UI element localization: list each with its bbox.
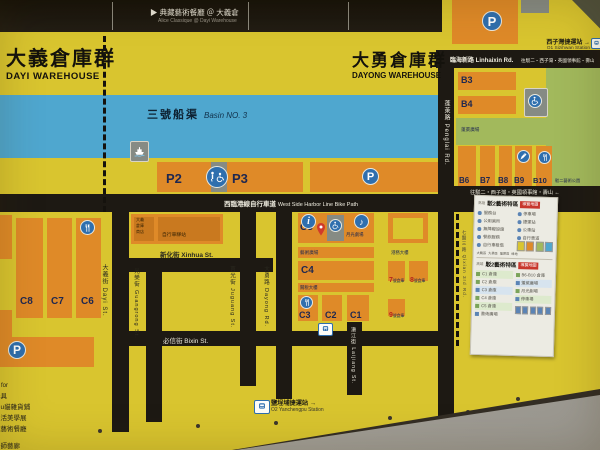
zone-chip-dayi — [516, 241, 524, 251]
art-plaza-label: 藝術廣場 — [300, 250, 318, 256]
mrt-icon — [591, 38, 600, 49]
zone-chip-label: 綠地 — [511, 251, 518, 256]
bixin-label: 必信街 Bixin St. — [163, 335, 208, 345]
legend-item-label: 公用廁所 — [483, 218, 500, 224]
zone-chip-penglai — [535, 242, 543, 252]
edge-building-upper — [0, 215, 12, 259]
legend-item-label: C4 倉庫 — [481, 295, 496, 301]
mini-chip — [522, 306, 528, 314]
warehouse-b8-label: B8 — [498, 176, 508, 185]
warehouse-b6-label: B6 — [459, 176, 469, 185]
header-divider — [348, 2, 349, 30]
warehouse-b7-label: B7 — [480, 176, 490, 185]
moonlight-theater-label: 月光劇場 — [346, 232, 364, 238]
legend-col-1: 服務台 公用廁所 無障礙設施 餐飲服務 自行車租借 — [477, 209, 515, 250]
sizihwan-zh: 西子灣捷運站 → — [524, 37, 590, 46]
parking-letter: P — [488, 14, 497, 29]
legend-square-icon — [475, 296, 479, 300]
craft-icon — [517, 150, 530, 163]
legend-item-label: B6-B10 倉庫 — [521, 272, 545, 279]
legend-square-icon — [476, 288, 480, 292]
linhaixin-label: 臨海新路 Linhaixin Rd. — [450, 55, 513, 64]
warehouse-b3-label: B3 — [461, 75, 473, 85]
legend-dot-icon — [477, 235, 481, 239]
legend-prefix: 高雄 — [476, 261, 483, 266]
tenant-line: lulu貓雜貨鋪 — [0, 401, 30, 411]
road-dayi-st — [112, 212, 129, 432]
zone-title-dayi-zh: 大義倉庫群 — [6, 42, 116, 71]
warehouse-c1-label: C1 — [350, 310, 362, 320]
legend-prefix: 高雄 — [478, 200, 485, 205]
warehouse-b9-label: B9 — [514, 176, 524, 185]
legend-item-label: 自行車租借 — [483, 242, 504, 249]
road-juguang — [240, 212, 256, 386]
header-item: ▶ 典藏藝術餐廳 ＠ 大義倉 — [150, 7, 239, 18]
info-icon: i — [301, 214, 316, 229]
legend-item-label: 服務台 — [484, 210, 497, 216]
legend-dot-icon — [477, 243, 481, 247]
zone-title-dayi-en: DAYI WAREHOUSE — [6, 71, 116, 82]
legend-item-label: 餐飲服務 — [483, 234, 500, 240]
zone-chip-label: 大勇區 — [488, 250, 498, 255]
legend-zone-chips — [516, 242, 553, 251]
header-divider — [112, 2, 113, 30]
ferry-ship-icon — [130, 141, 149, 162]
wheelchair-icon — [528, 94, 542, 108]
legend-item-label: 捷運站 — [523, 219, 536, 225]
legend-square-icon — [515, 297, 519, 301]
mini-chip — [544, 307, 550, 315]
zone-title-dayong-zh: 大勇倉庫群 — [352, 46, 447, 71]
zone-chip-label: 大義區 — [477, 250, 487, 255]
yanchengpu-en: O2 Yanchengpu Station — [271, 407, 324, 413]
parking-icon: P — [482, 11, 502, 31]
basin-label: 三號船渠 Basin NO. 3 — [147, 106, 247, 122]
route-dashed-east — [456, 214, 459, 346]
parking-letter: P — [367, 171, 374, 183]
legend-square-icon — [515, 281, 519, 285]
sizihwan-en: O1 Sizihwan Station — [524, 46, 590, 51]
legend-square-icon — [515, 273, 519, 277]
no8-suffix: 號倉庫 — [414, 279, 425, 283]
legend-item-label: C1 倉庫 — [482, 271, 497, 277]
penglai-plaza-label: 蓬萊廣場 — [461, 127, 479, 133]
bike-station-label: 自行車驛站 — [158, 231, 186, 241]
mini-chip — [514, 306, 520, 314]
tower-label: 港務大樓 — [391, 250, 409, 256]
zone-title-dayong: 大勇倉庫群 DAYONG WAREHOUSE — [352, 46, 447, 80]
legend-square-icon — [515, 289, 519, 293]
zone-title-dayong-en: DAYONG WAREHOUSE — [352, 71, 447, 80]
parking-p2-label: P2 — [166, 171, 182, 186]
basin-label-en: Basin NO. 3 — [204, 111, 247, 120]
legend-square-icon — [475, 312, 479, 316]
no7-suffix: 號倉庫 — [393, 279, 404, 283]
legend-square-icon — [476, 272, 480, 276]
parking-p3-label: P3 — [232, 171, 248, 186]
music-icon: ♪ — [354, 214, 369, 229]
parking-icon: P — [362, 168, 379, 185]
location-pin-icon — [315, 222, 327, 237]
tenant-list: er for 器具 lulu貓雜貨鋪 生活美學展 藏藝術餐廳 計師藝廊 — [0, 383, 30, 450]
qixian-label: 七賢三路 Qixian 3rd Rd. — [461, 230, 467, 298]
warehouse-no7-label: 7號倉庫 — [389, 269, 404, 287]
bike-path-label-zh: 西臨港線自行車道 — [224, 201, 276, 208]
legend-item-label: 月光劇場 — [521, 288, 538, 294]
legend-badge: 導覽地圖 — [520, 201, 540, 209]
header-item-zh: 典藏藝術餐廳 ＠ 大義倉 — [160, 8, 239, 17]
parking-letter: P — [13, 343, 21, 357]
header-arrow-icon: ▶ — [150, 8, 158, 17]
bike-path-label-en: West Side Harbor Line Bike Path — [278, 202, 358, 208]
legend-item-label: 藝術廣場 — [481, 311, 498, 317]
header-band: ▶ 典藏藝術餐廳 ＠ 大義倉 Alice Classique @ Dayi Wa… — [0, 0, 442, 32]
legend-title: 駁2藝術特區 — [487, 199, 518, 208]
tenant-line: 藏藝術餐廳 — [0, 423, 30, 433]
mini-chip — [537, 307, 543, 315]
rivet-dot — [98, 429, 102, 433]
legend-item-label: C5 倉庫 — [481, 303, 496, 309]
legend-dot-icon — [517, 228, 521, 232]
basin-label-zh: 三號船渠 — [147, 106, 199, 122]
bike-path-label: 西臨港線自行車道 West Side Harbor Line Bike Path — [224, 198, 358, 208]
legend-dot-icon — [517, 212, 521, 216]
photo-corner-top-right — [560, 0, 600, 30]
legend-mini-chips — [514, 306, 551, 315]
legend-item-label: 蓬萊廣場 — [521, 280, 538, 286]
rivet-dot — [516, 397, 520, 401]
basin-water — [0, 95, 438, 158]
legend-item: 停車場 — [515, 295, 552, 304]
road-dayong — [276, 212, 292, 399]
zone-chip-label: 蓬萊區 — [500, 251, 510, 256]
mrt-icon — [254, 400, 270, 414]
warehouse-no8-label: 8號倉庫 — [410, 269, 425, 287]
legend-square-icon — [476, 280, 480, 284]
warehouse-c8-label: C8 — [20, 296, 33, 307]
legend-item-label: 無障礙設施 — [483, 226, 504, 233]
xinhua-label: 新化街 Xinhua St. — [160, 249, 213, 259]
dayi-st-label: 大義街 Dayi St. — [100, 264, 109, 317]
warehouse-no9-label: 9號倉庫 — [389, 304, 404, 322]
legend-dot-icon — [517, 236, 521, 240]
rivet-dot — [196, 424, 200, 428]
tenant-line: 器具 — [0, 390, 30, 400]
warehouse-c2-label: C2 — [325, 310, 337, 320]
legend-dot-icon — [478, 211, 482, 215]
tenant-line: 計師藝廊 — [0, 440, 30, 450]
bike-rental-block: 自行車驛站 — [158, 217, 220, 241]
park-area-east — [546, 67, 600, 186]
tenant-line: er for — [0, 383, 30, 389]
yanchengpu-station-note: 鹽埕埔捷運站 → O2 Yanchengpu Station — [271, 398, 324, 413]
juguang-label: 莒光街 Juguang St. — [228, 266, 236, 328]
warehouse-b4-label: B4 — [461, 99, 473, 109]
warehouse-c4-label: C4 — [301, 265, 314, 276]
legend-header-2: 高雄 駁2藝術特區 導覽地圖 — [476, 260, 552, 270]
dayong-rd-label: 大勇路 Dayong Rd. — [262, 266, 270, 327]
legend-item-label: 停車場 — [521, 296, 534, 302]
dayi-shop-block: 大義 倉庫 商店 — [134, 217, 154, 241]
customs-label: 關稅大樓 — [300, 285, 318, 291]
pier2-map-sign: ▶ 典藏藝術餐廳 ＠ 大義倉 Alice Classique @ Dayi Wa… — [0, 0, 600, 450]
legend-dot-icon — [477, 219, 481, 223]
legend-item-label: 停車場 — [523, 211, 536, 217]
restaurant-icon — [80, 220, 95, 235]
building-top-right-small — [521, 0, 549, 13]
legend-badge: 導覽地圖 — [518, 262, 538, 270]
rivet-dot — [388, 416, 392, 420]
header-item-en: Alice Classique @ Dayi Warehouse — [158, 18, 237, 24]
legend-item-label: C2 倉庫 — [482, 279, 497, 285]
legend-panel: 高雄 駁2藝術特區 導覽地圖 服務台 公用廁所 無障礙設施 餐飲服務 自行車租借… — [470, 195, 558, 357]
legend-item-label: C3 倉庫 — [482, 287, 497, 293]
warehouse-c6-label: C6 — [81, 296, 94, 307]
road-guangrong — [146, 258, 162, 422]
warehouse-c7-label: C7 — [51, 296, 64, 307]
zone-chip-dayong — [526, 241, 534, 251]
sizihwan-station-note: 西子灣捷運站 → O1 Sizihwan Station — [524, 37, 590, 51]
restaurant-icon — [300, 296, 313, 309]
mini-chip — [529, 306, 535, 314]
wheelchair-icon — [329, 219, 342, 232]
legend-square-icon — [475, 304, 479, 308]
tenant-line: 生活美學展 — [0, 412, 30, 422]
restaurant-icon — [538, 151, 551, 164]
yanchengpu-zh: 鹽埕埔捷運站 → — [271, 398, 324, 407]
legend-col-3: C1 倉庫 C2 倉庫 C3 倉庫 C4 倉庫 C5 倉庫 藝術廣場 — [475, 270, 513, 319]
warehouse-c3-label: C3 — [299, 310, 311, 320]
legend-item: 自行車租借 — [477, 241, 514, 250]
dayi-shop-line3: 商店 — [136, 229, 154, 235]
legend-dot-icon — [477, 227, 481, 231]
legend-title: 駁2藝術特區 — [485, 260, 516, 269]
header-divider — [248, 2, 249, 30]
zone-chip-green — [545, 242, 553, 252]
accessible-person-icon — [206, 166, 228, 188]
direction-label-upper: 往駁二・西子灣・英國領事館・壽山 — [521, 58, 595, 64]
warehouse-b10-label: B10 — [533, 176, 547, 185]
legend-item: 藝術廣場 — [475, 310, 512, 319]
mrt-icon — [318, 323, 333, 336]
parking-icon: P — [8, 341, 26, 359]
no9-suffix: 號倉庫 — [393, 314, 404, 318]
laijiang-label: 瀨江街 Laijiang St. — [350, 327, 357, 384]
east-court-inner — [393, 218, 423, 239]
penglai-label: 蓬萊路 Penglai Rd. — [442, 100, 451, 166]
zone-title-dayi: 大義倉庫群 DAYI WAREHOUSE — [6, 42, 116, 82]
rivet-dot — [274, 421, 278, 425]
legend-col-4: B6-B10 倉庫 蓬萊廣場 月光劇場 停車場 — [514, 271, 552, 320]
legend-item-label: 公車站 — [523, 227, 536, 233]
legend-col-2: 停車場 捷運站 公車站 自行車道 — [516, 210, 554, 251]
legend-header-1: 高雄 駁2藝術特區 導覽地圖 — [478, 199, 554, 209]
guangrong-label: 光榮街 Guangrong St. — [132, 268, 140, 339]
legend-dot-icon — [517, 220, 521, 224]
pier2-park-label: 駁二藝術公園 — [555, 178, 580, 184]
